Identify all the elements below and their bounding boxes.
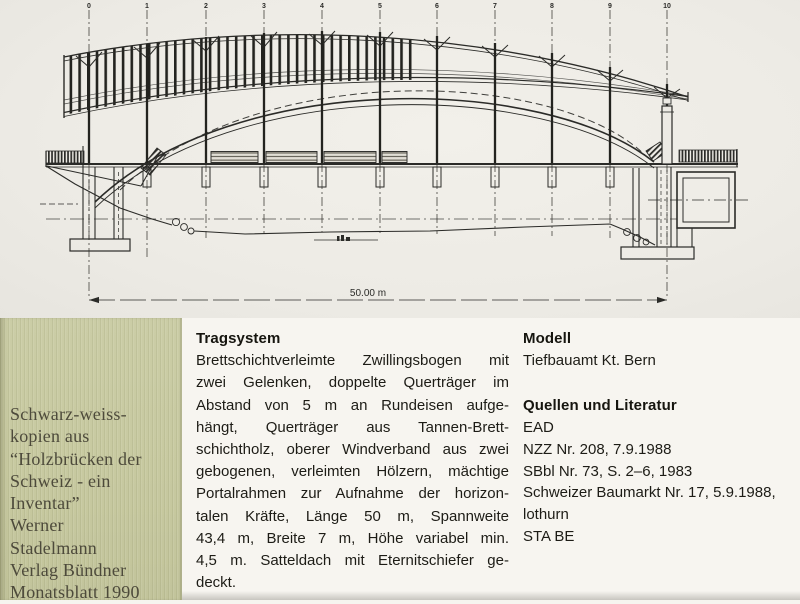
dimension-line: 50.00 m bbox=[89, 288, 667, 303]
grid-label: 6 bbox=[435, 3, 439, 10]
crossbeam-stubs bbox=[143, 167, 614, 187]
tragsystem-line: gebogenen, verleimten Hölzern, mächtige bbox=[196, 461, 509, 483]
reference-item: SBbl Nr. 73, S. 2–6, 1983 bbox=[523, 461, 785, 483]
grid-label: 10 bbox=[663, 3, 671, 10]
tragsystem-line: Abstand von 5 m an Rundeisen aufge- bbox=[196, 395, 509, 417]
caption-line: Schweiz - ein bbox=[10, 470, 174, 492]
grid-label: 8 bbox=[550, 3, 554, 10]
grid-label: 9 bbox=[608, 3, 612, 10]
scanned-drawing-area: 0 1 2 3 4 5 6 7 8 9 10 bbox=[0, 0, 800, 318]
bridge-elevation-drawing: 0 1 2 3 4 5 6 7 8 9 10 bbox=[0, 0, 800, 318]
modell-heading: Modell bbox=[523, 328, 785, 350]
tragsystem-section: Tragsystem Brettschichtverleimte Zwillin… bbox=[196, 328, 509, 594]
grid-label: 7 bbox=[493, 3, 497, 10]
tragsystem-line: talen Kräfte, Länge 50 m, Spannweite bbox=[196, 506, 509, 528]
tragsystem-line: Portalrahmen zur Aufnahme der horizon- bbox=[196, 483, 509, 505]
page-edge-shadow bbox=[182, 591, 800, 600]
midspan-mark bbox=[314, 235, 378, 241]
right-abutment bbox=[621, 98, 752, 259]
caption-text: Schwarz-weiss- kopien aus “Holzbrücken d… bbox=[10, 403, 174, 604]
grid-label: 1 bbox=[145, 3, 149, 10]
roof-band bbox=[64, 18, 688, 123]
tragsystem-line: 43,4 m, Breite 7 m, Höhe variabel min. bbox=[196, 528, 509, 550]
tragsystem-heading: Tragsystem bbox=[196, 328, 509, 350]
grid-label: 3 bbox=[262, 3, 266, 10]
twin-arch bbox=[95, 91, 654, 208]
modell-body: Tiefbauamt Kt. Bern bbox=[523, 350, 785, 372]
description-area: Tragsystem Brettschichtverleimte Zwillin… bbox=[182, 318, 800, 600]
ground-line bbox=[46, 166, 697, 245]
caption-line: Verlag Bündner bbox=[10, 559, 174, 581]
caption-line: Inventar” bbox=[10, 492, 174, 514]
grid-label: 5 bbox=[378, 3, 382, 10]
tragsystem-line: hängt, Querträger aus Tannen-Brett- bbox=[196, 417, 509, 439]
reference-item: EAD bbox=[523, 417, 785, 439]
tragsystem-line: schichtholz, oberer Windverband aus zwei bbox=[196, 439, 509, 461]
tragsystem-line: zwei Gelenken, doppelte Querträger im bbox=[196, 372, 509, 394]
grid-label: 2 bbox=[204, 3, 208, 10]
grid-label: 4 bbox=[320, 3, 324, 10]
reference-item: Schweizer Baumarkt Nr. 17, 5.9.1988, bbox=[523, 482, 785, 504]
dimension-label: 50.00 m bbox=[350, 288, 386, 299]
caption-line: Werner bbox=[10, 514, 174, 536]
caption-line: Monatsblatt 1990 bbox=[10, 581, 174, 603]
caption-line: “Holzbrücken der bbox=[10, 448, 174, 470]
caption-line: Stadelmann bbox=[10, 537, 174, 559]
tragsystem-line: Brettschichtverleimte Zwillingsbogen mit bbox=[196, 350, 509, 372]
caption-line: kopien aus bbox=[10, 425, 174, 447]
tragsystem-line: 4,5 m. Satteldach mit Eternitschiefer ge… bbox=[196, 550, 509, 572]
caption-sidebar: Schwarz-weiss- kopien aus “Holzbrücken d… bbox=[0, 318, 182, 600]
reference-item: lothurn bbox=[523, 504, 785, 526]
references-section: Modell Tiefbauamt Kt. Bern Quellen und L… bbox=[523, 328, 785, 547]
caption-line: Schwarz-weiss- bbox=[10, 403, 174, 425]
grid-label: 0 bbox=[87, 3, 91, 10]
quellen-heading: Quellen und Literatur bbox=[523, 395, 785, 417]
reference-item: NZZ Nr. 208, 7.9.1988 bbox=[523, 439, 785, 461]
reference-item: STA BE bbox=[523, 526, 785, 548]
